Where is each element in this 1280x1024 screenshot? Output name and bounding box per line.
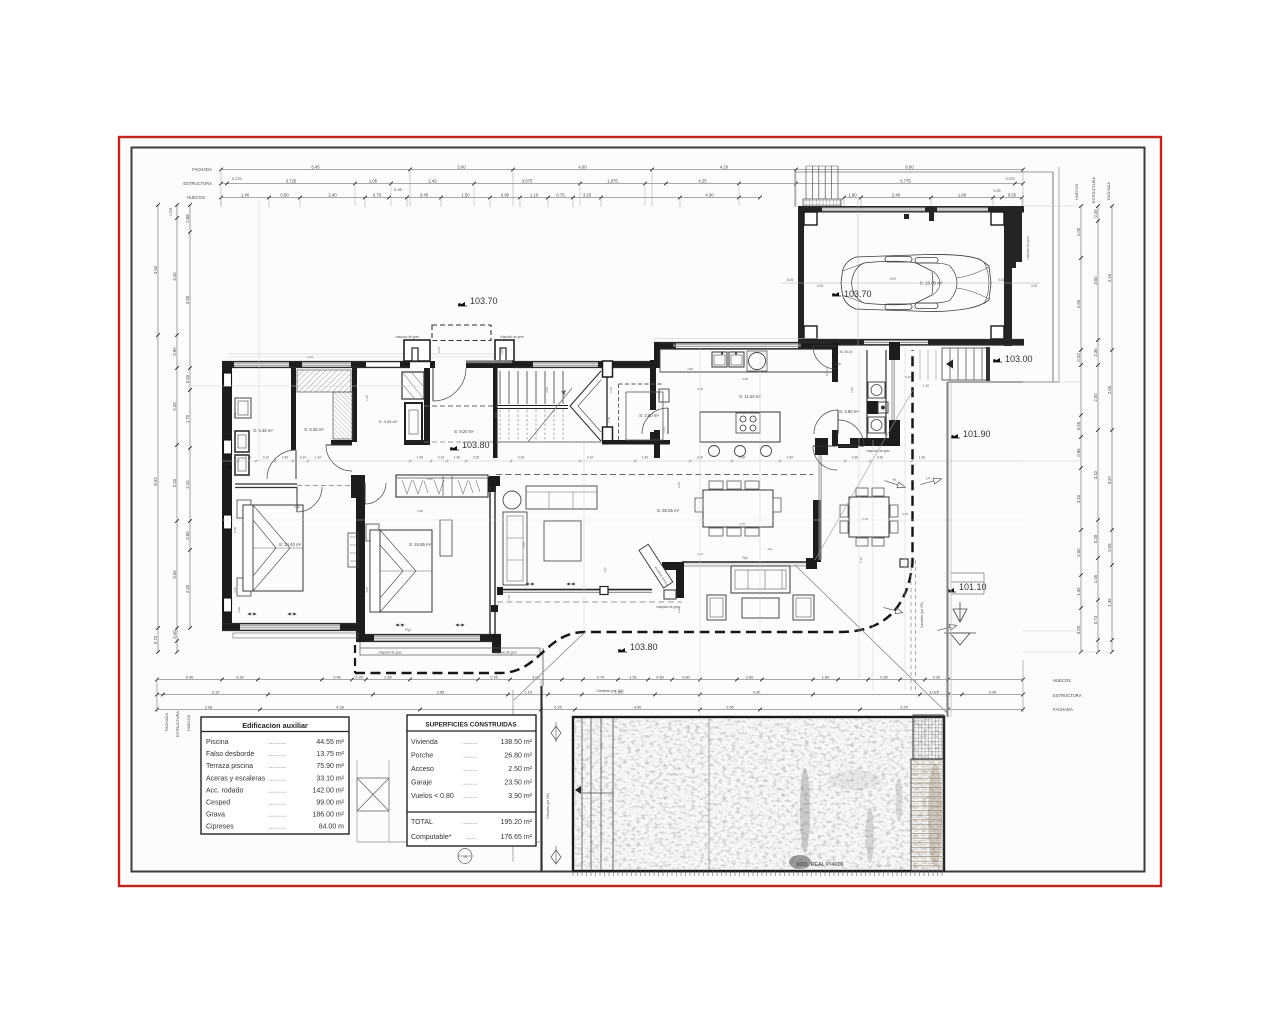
svg-text:..........: .......... bbox=[462, 820, 478, 826]
svg-text:0.80: 0.80 bbox=[682, 674, 690, 679]
svg-text:2.40: 2.40 bbox=[892, 192, 901, 197]
svg-text:195.20 m²: 195.20 m² bbox=[500, 819, 532, 826]
svg-text:chapado de gres: chapado de gres bbox=[378, 651, 402, 655]
svg-text:0.88: 0.88 bbox=[185, 214, 190, 223]
svg-text:2.10: 2.10 bbox=[185, 480, 190, 489]
svg-text:0.40: 0.40 bbox=[172, 630, 177, 639]
svg-text:2.78: 2.78 bbox=[739, 522, 745, 526]
svg-text:chapado de gres: chapado de gres bbox=[866, 449, 890, 453]
svg-text:1.80: 1.80 bbox=[958, 192, 967, 197]
svg-text:1.875: 1.875 bbox=[607, 178, 618, 183]
svg-text:103.70: 103.70 bbox=[844, 289, 872, 299]
svg-text:2.40: 2.40 bbox=[428, 178, 437, 183]
svg-text:2.40: 2.40 bbox=[185, 584, 190, 593]
svg-text:186.00 m²: 186.00 m² bbox=[312, 812, 344, 819]
svg-text:4.86: 4.86 bbox=[687, 367, 693, 371]
svg-text:Fijo: Fijo bbox=[405, 628, 411, 632]
svg-text:0.23: 0.23 bbox=[1076, 353, 1081, 362]
svg-text:4.08: 4.08 bbox=[365, 587, 369, 593]
svg-text:4.20: 4.20 bbox=[720, 164, 729, 169]
svg-text:3.40: 3.40 bbox=[172, 272, 177, 281]
svg-text:1.80: 1.80 bbox=[787, 456, 794, 460]
svg-text:BL 45-02: BL 45-02 bbox=[840, 350, 853, 354]
svg-text:0.35: 0.35 bbox=[355, 674, 363, 679]
svg-text:3.90 m²: 3.90 m² bbox=[508, 793, 532, 800]
svg-text:1.40: 1.40 bbox=[241, 192, 250, 197]
svg-text:4.28: 4.28 bbox=[336, 704, 344, 709]
svg-text:0.10: 0.10 bbox=[263, 456, 270, 460]
svg-text:1.10: 1.10 bbox=[530, 192, 539, 197]
svg-text:000). REAL P/4006: 000). REAL P/4006 bbox=[796, 862, 843, 868]
svg-text:1.48: 1.48 bbox=[365, 395, 369, 401]
svg-text:0.75: 0.75 bbox=[556, 192, 565, 197]
svg-text:1.46: 1.46 bbox=[1093, 574, 1098, 583]
svg-text:0.44: 0.44 bbox=[609, 387, 613, 393]
svg-text:3.40: 3.40 bbox=[1076, 494, 1081, 503]
svg-text:1.80: 1.80 bbox=[835, 362, 841, 366]
svg-text:S: 15.85 m²: S: 15.85 m² bbox=[409, 542, 432, 547]
svg-text:1.80: 1.80 bbox=[282, 456, 289, 460]
svg-text:..........: .......... bbox=[462, 740, 478, 746]
svg-text:5.35: 5.35 bbox=[233, 527, 237, 533]
svg-text:HUECOS: HUECOS bbox=[1075, 183, 1079, 200]
svg-text:1.15: 1.15 bbox=[524, 689, 532, 694]
svg-text:0.20: 0.20 bbox=[933, 674, 941, 679]
svg-text:1.10: 1.10 bbox=[315, 456, 322, 460]
svg-text:0.90: 0.90 bbox=[501, 192, 510, 197]
svg-text:FACHADA: FACHADA bbox=[165, 713, 169, 731]
svg-text:0.10: 0.10 bbox=[518, 456, 525, 460]
svg-text:S: 14.40 m²: S: 14.40 m² bbox=[279, 542, 302, 547]
svg-text:103.00: 103.00 bbox=[1005, 354, 1033, 364]
svg-text:0.86: 0.86 bbox=[1076, 448, 1081, 457]
svg-text:4.98: 4.98 bbox=[742, 377, 748, 381]
svg-text:Piscina: Piscina bbox=[206, 739, 229, 746]
svg-text:3.50: 3.50 bbox=[1093, 276, 1098, 285]
svg-text:Computable*: Computable* bbox=[411, 834, 452, 841]
svg-text:0.375: 0.375 bbox=[169, 208, 173, 217]
svg-text:101.10: 101.10 bbox=[959, 582, 987, 592]
svg-text:1.30: 1.30 bbox=[919, 456, 926, 460]
svg-text:Grava: Grava bbox=[206, 812, 225, 819]
svg-text:..........: .......... bbox=[462, 794, 478, 800]
svg-text:2.60: 2.60 bbox=[384, 674, 392, 679]
svg-text:4.00: 4.00 bbox=[578, 164, 587, 169]
svg-text:1.70: 1.70 bbox=[185, 414, 190, 423]
svg-text:3.08: 3.08 bbox=[545, 387, 549, 393]
svg-text:2.38: 2.38 bbox=[862, 517, 868, 521]
svg-text:8.53: 8.53 bbox=[153, 477, 158, 486]
svg-text:Acc. rodado: Acc. rodado bbox=[206, 787, 243, 794]
svg-text:0.08: 0.08 bbox=[427, 477, 433, 481]
svg-text:3.60: 3.60 bbox=[657, 392, 661, 398]
svg-text:0.65: 0.65 bbox=[1008, 192, 1017, 197]
svg-text:3.025: 3.025 bbox=[929, 689, 939, 694]
svg-text:103.80: 103.80 bbox=[630, 642, 658, 652]
svg-text:0.90: 0.90 bbox=[280, 192, 289, 197]
svg-text:ESTRUCTURA: ESTRUCTURA bbox=[1092, 177, 1096, 203]
svg-text:3.25: 3.25 bbox=[1076, 625, 1081, 634]
svg-text:Canaleta (pte 2%): Canaleta (pte 2%) bbox=[546, 793, 550, 819]
svg-text:4.30: 4.30 bbox=[705, 192, 714, 197]
svg-text:Cesped: Cesped bbox=[206, 800, 230, 807]
svg-text:Garaje: Garaje bbox=[411, 780, 432, 787]
svg-text:0.70: 0.70 bbox=[373, 192, 382, 197]
svg-text:S: 11.50 m²: S: 11.50 m² bbox=[739, 394, 761, 399]
svg-text:0.10: 0.10 bbox=[307, 355, 313, 359]
svg-text:3.10: 3.10 bbox=[494, 412, 498, 418]
svg-text:0.65: 0.65 bbox=[1076, 421, 1081, 430]
svg-text:Falso desborde: Falso desborde bbox=[206, 751, 254, 758]
svg-text:3.10: 3.10 bbox=[662, 427, 666, 433]
svg-text:0.30: 0.30 bbox=[852, 456, 859, 460]
svg-text:............: ............ bbox=[268, 813, 287, 819]
svg-text:SUPERFICIES CONSTRUIDAS: SUPERFICIES CONSTRUIDAS bbox=[425, 722, 517, 729]
svg-text:75.90 m²: 75.90 m² bbox=[316, 763, 344, 770]
svg-text:chapado de gres: chapado de gres bbox=[1026, 236, 1030, 260]
svg-text:ESTRUCTURA: ESTRUCTURA bbox=[1053, 693, 1082, 698]
svg-text:0.25: 0.25 bbox=[994, 189, 1001, 193]
svg-text:............: ............ bbox=[268, 788, 287, 794]
svg-text:S: 3.05 m²: S: 3.05 m² bbox=[379, 419, 398, 424]
svg-text:23.50 m²: 23.50 m² bbox=[504, 780, 532, 787]
svg-text:4.10: 4.10 bbox=[233, 587, 237, 593]
svg-text:3.725: 3.725 bbox=[286, 178, 297, 183]
svg-text:2.50: 2.50 bbox=[726, 704, 734, 709]
svg-text:1.35: 1.35 bbox=[1107, 598, 1112, 607]
svg-text:2.20: 2.20 bbox=[172, 478, 177, 487]
svg-text:Fijo: Fijo bbox=[768, 547, 773, 551]
svg-text:176.65 m²: 176.65 m² bbox=[500, 834, 532, 841]
svg-text:0.10: 0.10 bbox=[438, 456, 445, 460]
svg-text:9.30: 9.30 bbox=[905, 375, 911, 379]
svg-text:1.05: 1.05 bbox=[369, 178, 378, 183]
svg-text:0.95: 0.95 bbox=[490, 674, 498, 679]
svg-text:FACHADA: FACHADA bbox=[1053, 707, 1073, 712]
svg-text:0.70: 0.70 bbox=[597, 674, 605, 679]
svg-text:..........: .......... bbox=[462, 781, 478, 787]
svg-text:2.36: 2.36 bbox=[1093, 348, 1098, 357]
svg-text:..........: .......... bbox=[462, 754, 478, 760]
svg-text:3.20: 3.20 bbox=[583, 192, 592, 197]
svg-text:7.60: 7.60 bbox=[507, 595, 511, 601]
svg-text:Vuelos < 0.80: Vuelos < 0.80 bbox=[411, 793, 454, 800]
svg-text:6.35: 6.35 bbox=[817, 284, 823, 288]
svg-text:0.73: 0.73 bbox=[1093, 615, 1098, 624]
svg-text:2.20: 2.20 bbox=[172, 402, 177, 411]
svg-text:Canaleta (pte 2%): Canaleta (pte 2%) bbox=[920, 602, 924, 628]
svg-text:chapado de gres: chapado de gres bbox=[500, 335, 524, 339]
svg-text:0.46: 0.46 bbox=[437, 347, 441, 353]
svg-text:Edificacion auxiliar: Edificacion auxiliar bbox=[242, 721, 308, 730]
svg-text:4.30: 4.30 bbox=[753, 689, 761, 694]
svg-text:3.10: 3.10 bbox=[587, 456, 594, 460]
svg-text:2.98: 2.98 bbox=[205, 704, 213, 709]
svg-text:2.38: 2.38 bbox=[607, 417, 611, 423]
svg-text:5.45: 5.45 bbox=[311, 164, 320, 169]
svg-text:1.80: 1.80 bbox=[822, 674, 830, 679]
svg-text:Vivienda: Vivienda bbox=[411, 739, 438, 746]
svg-text:3.25: 3.25 bbox=[900, 704, 908, 709]
svg-text:3.05: 3.05 bbox=[172, 570, 177, 579]
svg-text:3.85: 3.85 bbox=[437, 689, 445, 694]
svg-text:5.775: 5.775 bbox=[900, 178, 911, 183]
svg-text:142.00 m²: 142.00 m² bbox=[312, 787, 344, 794]
svg-text:3.68: 3.68 bbox=[294, 505, 300, 509]
svg-text:1.50: 1.50 bbox=[461, 192, 470, 197]
svg-text:FACHADA: FACHADA bbox=[1107, 182, 1111, 200]
svg-text:1.40: 1.40 bbox=[642, 456, 649, 460]
svg-text:99.00 m²: 99.00 m² bbox=[316, 800, 344, 807]
svg-text:Horno: Horno bbox=[825, 368, 829, 376]
svg-text:0.05: 0.05 bbox=[1107, 543, 1112, 552]
svg-text:4.00: 4.00 bbox=[522, 542, 526, 548]
svg-text:3.95: 3.95 bbox=[185, 295, 190, 304]
svg-text:HUECOS: HUECOS bbox=[1053, 678, 1071, 683]
svg-text:Fijo: Fijo bbox=[742, 556, 748, 560]
svg-text:0.70: 0.70 bbox=[153, 635, 158, 644]
svg-text:0.25: 0.25 bbox=[554, 704, 562, 709]
svg-text:0.90: 0.90 bbox=[172, 347, 177, 356]
svg-text:............: ............ bbox=[268, 740, 287, 746]
svg-text:8.00: 8.00 bbox=[905, 164, 914, 169]
svg-text:2.65: 2.65 bbox=[1107, 385, 1112, 394]
svg-text:1.30: 1.30 bbox=[923, 384, 929, 388]
svg-text:33.10 m²: 33.10 m² bbox=[316, 775, 344, 782]
svg-text:2.00: 2.00 bbox=[1093, 393, 1098, 402]
svg-text:16: 16 bbox=[463, 855, 467, 859]
svg-text:0.40: 0.40 bbox=[333, 674, 341, 679]
svg-text:3.25: 3.25 bbox=[473, 456, 480, 460]
svg-text:ESTRUCTURA: ESTRUCTURA bbox=[176, 711, 180, 737]
svg-text:Acceso: Acceso bbox=[411, 766, 434, 773]
svg-text:0.10: 0.10 bbox=[300, 456, 307, 460]
svg-text:1.46: 1.46 bbox=[417, 456, 424, 460]
svg-text:Cipreses: Cipreses bbox=[206, 824, 234, 831]
svg-text:chapado de gres: chapado de gres bbox=[395, 335, 419, 339]
svg-text:3.87: 3.87 bbox=[1107, 475, 1112, 484]
svg-text:103.70: 103.70 bbox=[470, 296, 498, 306]
svg-text:5.92: 5.92 bbox=[890, 277, 896, 281]
svg-text:4.15: 4.15 bbox=[1107, 273, 1112, 282]
svg-text:3.30: 3.30 bbox=[236, 674, 244, 679]
svg-text:Canaleta (pte 2%): Canaleta (pte 2%) bbox=[596, 689, 623, 693]
svg-text:3.98: 3.98 bbox=[417, 509, 423, 513]
svg-text:FACHADA: FACHADA bbox=[192, 167, 212, 172]
svg-text:Porche: Porche bbox=[411, 753, 433, 760]
svg-text:1.70: 1.70 bbox=[245, 456, 252, 460]
svg-text:1.00: 1.00 bbox=[1076, 227, 1081, 236]
svg-text:3.30: 3.30 bbox=[233, 412, 237, 418]
svg-text:5.35: 5.35 bbox=[394, 188, 401, 192]
svg-text:0.40: 0.40 bbox=[989, 689, 997, 694]
svg-text:S: 3.60 m²: S: 3.60 m² bbox=[639, 413, 659, 418]
svg-text:138.50 m²: 138.50 m² bbox=[500, 739, 532, 746]
svg-text:0.28: 0.28 bbox=[1093, 534, 1098, 543]
svg-text:2.65: 2.65 bbox=[850, 387, 854, 393]
svg-text:0.85: 0.85 bbox=[880, 674, 888, 679]
svg-text:S: 35.05 m²: S: 35.05 m² bbox=[657, 508, 680, 513]
svg-text:0.90: 0.90 bbox=[739, 456, 746, 460]
svg-text:0.28: 0.28 bbox=[677, 607, 681, 613]
svg-text:0.85: 0.85 bbox=[185, 531, 190, 540]
svg-text:0.45: 0.45 bbox=[1093, 209, 1098, 218]
svg-text:S: 9.20 m²: S: 9.20 m² bbox=[454, 429, 474, 434]
svg-text:0.25: 0.25 bbox=[998, 278, 1004, 282]
svg-text:1.50: 1.50 bbox=[629, 674, 637, 679]
svg-text:4.25: 4.25 bbox=[698, 178, 707, 183]
svg-text:chapado de gres: chapado de gres bbox=[493, 651, 517, 655]
svg-text:26.80 m²: 26.80 m² bbox=[504, 753, 532, 760]
svg-text:TOTAL: TOTAL bbox=[411, 819, 433, 826]
svg-text:1.90: 1.90 bbox=[848, 192, 857, 197]
svg-text:4.00: 4.00 bbox=[634, 704, 642, 709]
svg-text:..........: .......... bbox=[462, 767, 478, 773]
svg-text:3.60: 3.60 bbox=[153, 265, 158, 274]
svg-text:0.30: 0.30 bbox=[677, 482, 681, 488]
svg-text:1.90: 1.90 bbox=[454, 456, 461, 460]
svg-text:0.60: 0.60 bbox=[185, 374, 190, 383]
svg-text:2.40: 2.40 bbox=[328, 192, 337, 197]
svg-text:Aceras y escaleras: Aceras y escaleras bbox=[206, 775, 266, 782]
svg-text:5.30: 5.30 bbox=[859, 557, 863, 563]
svg-text:3.10: 3.10 bbox=[212, 689, 220, 694]
svg-text:2.60: 2.60 bbox=[746, 674, 754, 679]
svg-text:.......: ....... bbox=[466, 835, 477, 841]
svg-text:101.90: 101.90 bbox=[963, 429, 991, 439]
svg-text:9.30: 9.30 bbox=[877, 456, 884, 460]
svg-text:44.55 m²: 44.55 m² bbox=[316, 739, 344, 746]
svg-text:3.08: 3.08 bbox=[500, 349, 504, 355]
svg-text:............: ............ bbox=[268, 764, 287, 770]
svg-text:S: 4.80 m²: S: 4.80 m² bbox=[839, 409, 859, 414]
svg-text:3.42: 3.42 bbox=[1093, 470, 1098, 479]
svg-text:0.60: 0.60 bbox=[656, 674, 664, 679]
svg-text:Terraza piscina: Terraza piscina bbox=[206, 763, 253, 770]
svg-text:103.80: 103.80 bbox=[462, 440, 490, 450]
svg-text:0.40: 0.40 bbox=[186, 674, 194, 679]
svg-text:HUECOS: HUECOS bbox=[187, 714, 191, 731]
svg-text:3.45: 3.45 bbox=[420, 192, 429, 197]
svg-text:84.00 m: 84.00 m bbox=[319, 824, 344, 831]
svg-text:2.65: 2.65 bbox=[1076, 299, 1081, 308]
svg-text:S: 5.45 m²: S: 5.45 m² bbox=[253, 428, 273, 433]
svg-text:2.50 m²: 2.50 m² bbox=[508, 766, 532, 773]
svg-text:0.50: 0.50 bbox=[1076, 548, 1081, 557]
svg-text:............: ............ bbox=[268, 801, 287, 807]
svg-text:1.30: 1.30 bbox=[1076, 587, 1081, 596]
svg-text:S: 15.00 m²: S: 15.00 m² bbox=[920, 281, 943, 286]
svg-text:0.375: 0.375 bbox=[1006, 177, 1015, 181]
svg-text:0.175: 0.175 bbox=[232, 177, 242, 181]
svg-text:ESTRUCTURA: ESTRUCTURA bbox=[183, 181, 212, 186]
svg-text:S: 5.35 m²: S: 5.35 m² bbox=[304, 427, 324, 432]
svg-text:3.00: 3.00 bbox=[457, 164, 466, 169]
svg-text:13.75 m²: 13.75 m² bbox=[316, 751, 344, 758]
svg-text:HUECOS: HUECOS bbox=[187, 195, 205, 200]
svg-text:6.25: 6.25 bbox=[787, 278, 794, 282]
svg-text:............: ............ bbox=[268, 825, 287, 831]
svg-text:............: ............ bbox=[268, 752, 287, 758]
svg-text:4.35: 4.35 bbox=[1031, 284, 1037, 288]
svg-text:Fijo: Fijo bbox=[603, 567, 607, 572]
svg-text:............: ............ bbox=[268, 776, 287, 782]
svg-text:0.98: 0.98 bbox=[237, 607, 241, 613]
svg-text:3.075: 3.075 bbox=[522, 178, 533, 183]
